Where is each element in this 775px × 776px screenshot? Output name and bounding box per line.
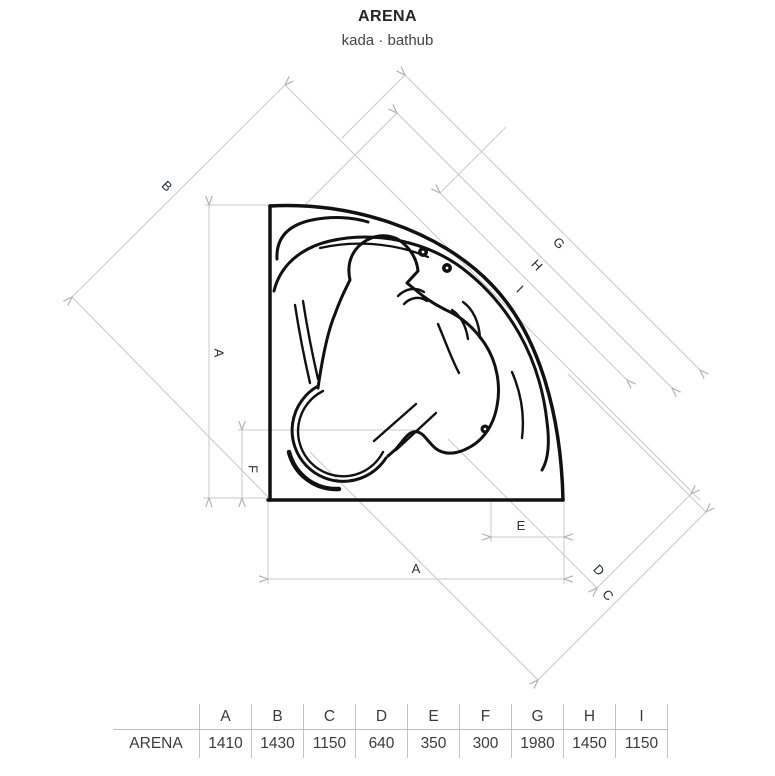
bathtub-spec-sheet: ARENA kada · bathub [0,0,775,776]
table-value-cell: 1410 [200,730,252,759]
dimension-label-d: D [590,561,607,578]
dimension-label-f: F [246,465,261,473]
table-header-cell: I [616,704,668,730]
dimension-label-c: C [599,586,616,603]
table-header-cell: B [252,704,304,730]
bathtub-outline [268,205,563,500]
table-row-label: ARENA [113,730,200,759]
table-value-cell: 350 [408,730,460,759]
table-header-empty [113,704,200,730]
table-value-cell: 1980 [512,730,564,759]
dimension-label-g: G [550,234,568,252]
dimension-label-i: I [513,282,526,295]
table-header-cell: C [304,704,356,730]
table-header-cell: H [564,704,616,730]
table-value-cell: 300 [460,730,512,759]
jet-and-drain-fittings [418,247,490,434]
dimension-label-e: E [517,518,526,533]
bathtub-technical-drawing: A F A E B G H I D C [0,0,775,700]
table-value-cell: 1450 [564,730,616,759]
dimension-label-a-horizontal: A [412,561,421,576]
table-header-cell: F [460,704,512,730]
table-value-cell: 1150 [304,730,356,759]
table-header-cell: D [356,704,408,730]
table-value-cell: 640 [356,730,408,759]
dimensions-table: A B C D E F G H I ARENA 1410 1430 1150 6… [113,704,668,758]
table-header-cell: E [408,704,460,730]
dimension-label-a-vertical: A [212,349,227,358]
dimension-label-b: B [159,178,176,195]
table-header-cell: G [512,704,564,730]
table-row: ARENA 1410 1430 1150 640 350 300 1980 14… [113,730,668,759]
table-header-row: A B C D E F G H I [113,704,668,730]
table-header-cell: A [200,704,252,730]
table-value-cell: 1150 [616,730,668,759]
table-value-cell: 1430 [252,730,304,759]
